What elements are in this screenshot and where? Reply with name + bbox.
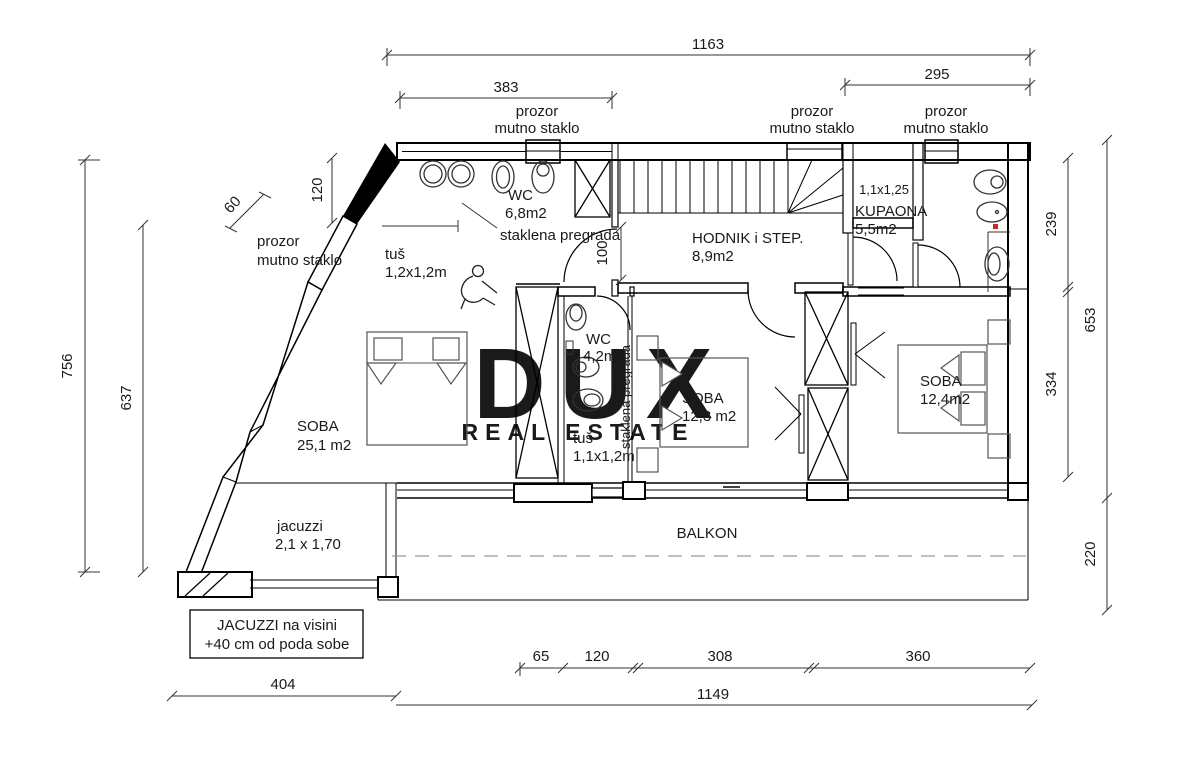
dim-bottom-120: 120 xyxy=(584,648,609,665)
dim-bottom-65: 65 xyxy=(533,648,550,665)
room-label-kupaona-area: 5,5m2 xyxy=(855,221,897,238)
room-label-kupaona-name: KUPAONA xyxy=(855,203,927,220)
red-marker-dot xyxy=(993,224,998,229)
window-label-left-line1: prozor xyxy=(257,233,300,250)
room-label-wc-top-area: 6,8m2 xyxy=(505,205,547,222)
jacuzzi-label-size: 2,1 x 1,70 xyxy=(275,536,341,553)
window-label-1-line1: prozor xyxy=(516,103,559,120)
jacuzzi-label-name: jacuzzi xyxy=(276,518,323,535)
dim-top-total: 1163 xyxy=(692,36,724,53)
glass-partition-label-h: staklena pregrada xyxy=(500,227,621,244)
window-label-2-line2: mutno staklo xyxy=(769,120,854,137)
shower-small-name: tuš xyxy=(573,430,593,447)
room-label-hodnik-area: 8,9m2 xyxy=(692,248,734,265)
person-icon xyxy=(461,266,497,310)
dim-top-right: 295 xyxy=(924,66,949,83)
dim-right-334: 334 xyxy=(1043,371,1060,396)
dim-window-120: 120 xyxy=(309,177,326,202)
dim-door-100: 100 xyxy=(594,240,611,265)
floor-plan-page: DUX REAL ESTATE xyxy=(0,0,1200,771)
dim-top-left: 383 xyxy=(493,79,518,96)
note-line1: JACUZZI na visini xyxy=(217,617,337,634)
dim-bottom-360: 360 xyxy=(905,648,930,665)
room-label-wc-top-name: WC xyxy=(508,187,533,204)
window-label-3-line2: mutno staklo xyxy=(903,120,988,137)
staircase xyxy=(618,160,843,213)
dim-right-220: 220 xyxy=(1082,541,1099,566)
dim-bottom-404: 404 xyxy=(270,676,295,693)
shower-small-size: 1,1x1,2m xyxy=(573,448,635,465)
window-label-left-line2: mutno staklo xyxy=(257,252,342,269)
dim-wall-60: 60 xyxy=(221,193,245,217)
room-label-soba-right-area: 12,4m2 xyxy=(920,391,970,408)
dim-left-inner: 637 xyxy=(118,385,135,410)
glass-partition-label-v: staklena pregrada xyxy=(618,344,633,449)
room-label-soba-large-name: SOBA xyxy=(297,418,339,435)
dim-right-239: 239 xyxy=(1043,211,1060,236)
room-label-balkon: BALKON xyxy=(677,525,738,542)
room-label-soba-mid-name: SOBA xyxy=(682,390,724,407)
shower-room-size: 1,1x1,25 xyxy=(859,182,909,197)
dim-left-outer: 756 xyxy=(59,353,76,378)
shower-large-size: 1,2x1,2m xyxy=(385,264,447,281)
shower-large-name: tuš xyxy=(385,246,405,263)
room-label-hodnik-name: HODNIK i STEP. xyxy=(692,230,803,247)
room-label-soba-mid-area: 12,3 m2 xyxy=(682,408,736,425)
window-label-2-line1: prozor xyxy=(791,103,834,120)
dim-bottom-1149: 1149 xyxy=(697,686,729,703)
window-label-3-line1: prozor xyxy=(925,103,968,120)
note-line2: +40 cm od poda sobe xyxy=(205,636,350,653)
room-label-soba-large-area: 25,1 m2 xyxy=(297,437,351,454)
dim-right-653: 653 xyxy=(1082,307,1099,332)
window-label-1-line2: mutno staklo xyxy=(494,120,579,137)
floor-plan-drawing: DUX REAL ESTATE xyxy=(0,0,1200,771)
room-label-soba-right-name: SOBA xyxy=(920,373,962,390)
dim-bottom-308: 308 xyxy=(707,648,732,665)
room-label-wc-mid-name: WC xyxy=(586,331,611,348)
